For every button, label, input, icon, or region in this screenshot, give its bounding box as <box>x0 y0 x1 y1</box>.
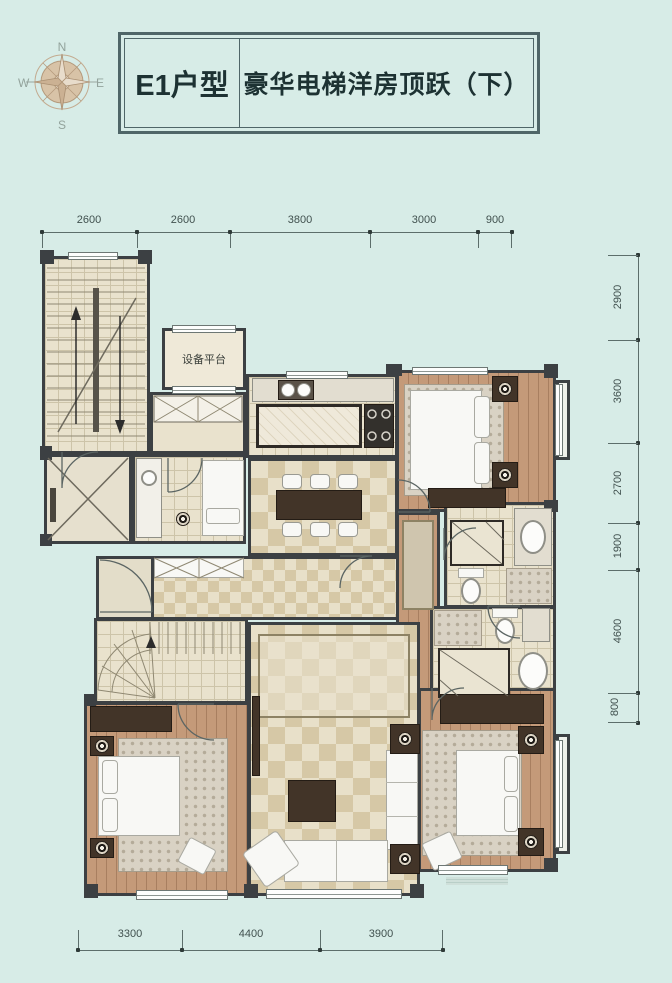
wall-pier <box>40 250 54 264</box>
bath1-sink <box>520 520 546 554</box>
kitchen-stove <box>364 404 394 448</box>
wall-pier <box>244 884 258 898</box>
window <box>555 740 563 848</box>
kitchen-sink-bowl <box>297 383 311 397</box>
wall-pier <box>544 364 558 378</box>
wall-pier <box>544 858 558 872</box>
wall-pier <box>40 446 52 460</box>
window <box>286 371 348 379</box>
bedroom1-pillow <box>504 756 518 792</box>
wall-pier <box>138 250 152 264</box>
bath2-tile-patch <box>434 610 482 646</box>
window <box>172 386 236 394</box>
foyer-shoe-cabinet <box>154 558 244 578</box>
bath1-shower <box>450 520 504 566</box>
dining-chair <box>310 474 330 489</box>
floor-plan: 设备平台 <box>0 0 672 983</box>
balcony-door-window <box>266 889 402 899</box>
bedroom2-pillow <box>474 396 490 438</box>
dining-chair <box>338 474 358 489</box>
room-spiral-stair <box>94 618 248 704</box>
bedroom2-lamp <box>498 468 512 482</box>
bedroom1-wardrobe <box>440 694 544 724</box>
kitchen-island <box>256 404 362 448</box>
entry-porch <box>96 556 154 620</box>
window <box>555 384 563 456</box>
bath2-shower <box>438 648 510 698</box>
bath2-sink <box>518 652 548 690</box>
kitchen-sink-bowl <box>281 383 295 397</box>
bedroom2-pillow <box>474 442 490 484</box>
maid-room-sink <box>141 470 157 486</box>
bedroom3-wardrobe <box>90 706 172 732</box>
window <box>68 252 118 260</box>
living-sofa-right <box>386 750 418 850</box>
dining-chair <box>310 522 330 537</box>
bedroom2-bed <box>410 390 482 490</box>
bedroom1-pillow <box>504 796 518 832</box>
dining-chair <box>282 474 302 489</box>
bedroom3-pillow <box>102 760 118 794</box>
maid-room-lamp <box>176 512 190 526</box>
room-closet-hall <box>150 392 246 454</box>
living-area-rug <box>258 634 410 718</box>
room-elevator <box>44 454 132 544</box>
room-stairwell <box>42 256 150 454</box>
living-tv-cabinet <box>252 696 260 776</box>
living-coffee-table <box>288 780 336 822</box>
bath1-tile-patch <box>506 568 552 604</box>
window <box>172 325 236 333</box>
bedroom3-pillow <box>102 798 118 832</box>
bedroom1-lamp <box>524 835 538 849</box>
bedroom2-lamp <box>498 382 512 396</box>
bath1-toilet-bowl <box>461 578 481 604</box>
wall-pier <box>386 364 402 376</box>
window <box>438 865 508 875</box>
bath2-cabinet <box>522 608 550 642</box>
floor-plan-page: N S W E E1户型 豪华电梯洋房顶跃（下） 2600 2600 3800 … <box>0 0 672 983</box>
hallway-runner-rug <box>402 520 434 610</box>
kitchen-counter <box>252 378 394 402</box>
bedroom3-lamp <box>95 739 109 753</box>
bedroom3-lamp <box>95 841 109 855</box>
maid-room-pillow <box>206 508 240 524</box>
equipment-platform-label: 设备平台 <box>182 351 226 367</box>
wall-pier <box>40 534 52 546</box>
bath2-toilet-tank <box>492 608 518 618</box>
bath1-toilet-tank <box>458 568 484 578</box>
bedroom2-wardrobe <box>428 488 506 508</box>
living-lamp <box>398 732 412 746</box>
dining-chair <box>282 522 302 537</box>
living-lamp <box>398 852 412 866</box>
bedroom1-lamp <box>524 733 538 747</box>
window <box>412 367 488 375</box>
wall-pier <box>84 884 98 898</box>
maid-room-bed <box>202 460 244 536</box>
wall-pier <box>410 884 424 898</box>
bath2-toilet-bowl <box>495 618 515 644</box>
outdoor-step <box>446 877 508 885</box>
wall-pier <box>84 694 96 706</box>
window <box>136 890 228 900</box>
dining-chair <box>338 522 358 537</box>
dining-table <box>276 490 362 520</box>
